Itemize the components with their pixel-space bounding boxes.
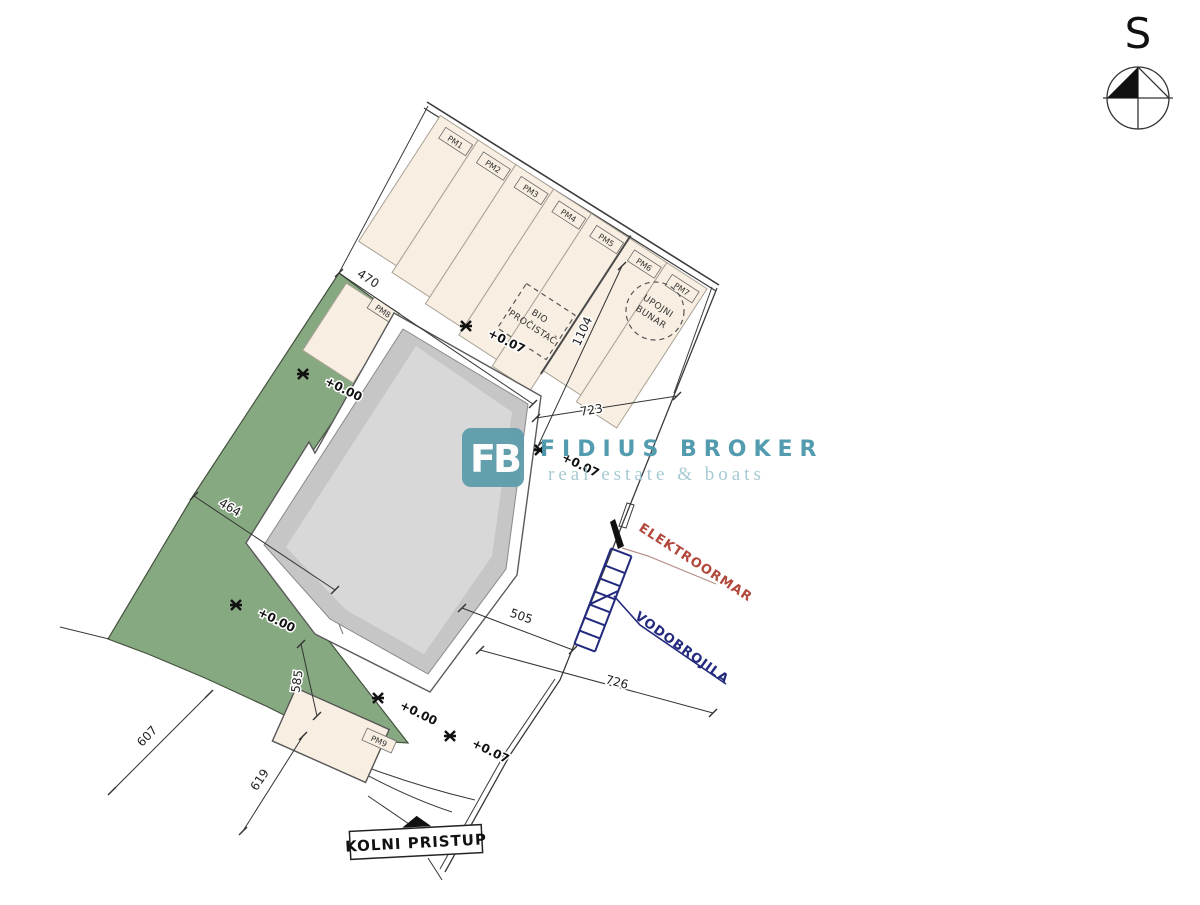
vodobrojila-label: VODOBROJILA	[632, 609, 732, 687]
brand-name: FIDIUS BROKER	[540, 437, 823, 462]
site-plan-page: PM1 PM2 PM3 PM4 PM5 PM6 PM7 PM8 PM9	[0, 0, 1200, 905]
dim-607: 607	[134, 723, 160, 749]
elevation-000-c: +0.00	[398, 698, 440, 728]
compass: S	[1103, 9, 1173, 129]
level-mark-icon	[372, 693, 384, 703]
dim-726: 726	[604, 672, 630, 691]
watermark: FB FIDIUS BROKER real estate & boats	[462, 428, 823, 487]
elevation-007-c: +0.07	[470, 736, 512, 766]
brand-tagline: real estate & boats	[548, 464, 765, 485]
kolni-pristup: KOLNI PRISTUP	[344, 796, 488, 880]
fb-logo-letters: FB	[470, 437, 520, 481]
compass-north-label: S	[1125, 9, 1152, 58]
elektroormar-cabinet-icon	[610, 519, 624, 549]
elektroormar-label: ELEKTROORMAR	[636, 521, 755, 606]
elektroormar: ELEKTROORMAR	[610, 519, 755, 605]
level-mark-icon	[444, 731, 456, 741]
dim-619: 619	[247, 766, 271, 793]
dim-505: 505	[508, 606, 534, 627]
site-plan-drawing: PM1 PM2 PM3 PM4 PM5 PM6 PM7 PM8 PM9	[0, 0, 1200, 905]
